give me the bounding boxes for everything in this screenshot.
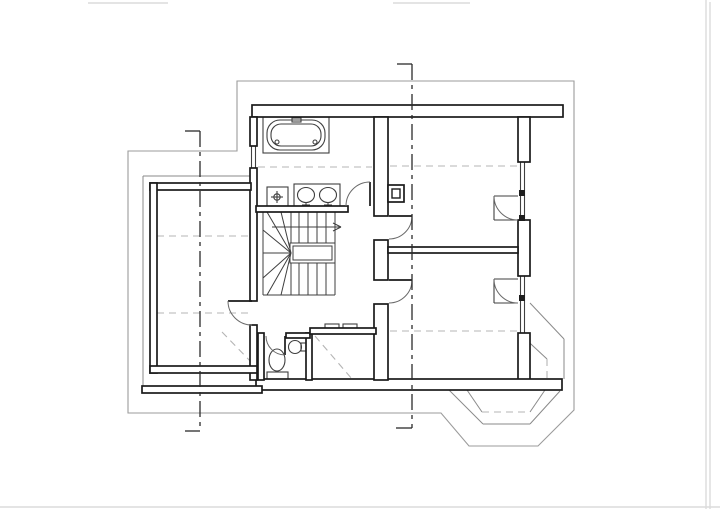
- ceiling-height-dashed-lines: [157, 166, 547, 412]
- scan-artifacts: [0, 0, 720, 509]
- stair-winder-u2: [267, 212, 291, 253]
- ne-room-door-swing-arc: [389, 216, 412, 239]
- wc-west-wall: [258, 333, 264, 380]
- wc-east-wall: [306, 333, 312, 380]
- left-room-south-wall: [150, 366, 257, 373]
- hall-east-wall-upper: [374, 117, 388, 216]
- bathtub-jet-left: [275, 140, 279, 144]
- bathroom-south-wall: [256, 206, 348, 212]
- hall-east-wall-middle: [374, 240, 388, 280]
- east-window1-mullion-lower: [519, 215, 525, 221]
- south-room-valley-line: [315, 336, 352, 379]
- toilet-bowl: [269, 349, 285, 371]
- east-exterior-wall-middle: [518, 220, 530, 276]
- bathroom-door-swing-arc: [346, 182, 370, 206]
- hall-east-wall-lower: [374, 304, 388, 380]
- bay-mid-side-left: [449, 390, 483, 424]
- stair-arrowhead-lower: [333, 227, 341, 231]
- south-middle-room-north-wall: [310, 328, 376, 334]
- bathtub-jet-right: [313, 140, 317, 144]
- wall-details: [392, 189, 400, 198]
- east-exterior-wall-upper: [518, 117, 530, 162]
- stair-winder-u1: [263, 230, 291, 253]
- stair-void-inner: [293, 246, 332, 260]
- bay-inner-side-right: [530, 390, 545, 412]
- north-exterior-wall: [252, 105, 563, 117]
- east-rooms-dividing-wall: [388, 247, 518, 253]
- south-exterior-wall: [256, 379, 562, 390]
- vanity-counter: [294, 184, 340, 207]
- bathroom-west-wall: [250, 117, 257, 146]
- walls: [142, 105, 563, 393]
- stair-winder-d2: [267, 253, 291, 295]
- wc-north-wall: [286, 333, 310, 338]
- left-block-outer-south-wall: [142, 386, 262, 393]
- staircase: [263, 212, 341, 295]
- casement2-swing-arc: [494, 279, 518, 303]
- vanity-basin-right: [320, 188, 337, 203]
- left-room-door-swing-arc: [228, 301, 252, 325]
- bay-inner-side-left: [467, 390, 482, 412]
- stair-arrowhead-upper: [333, 223, 341, 227]
- east-window2-mullion: [519, 295, 525, 301]
- se-room-door-swing-arc: [389, 280, 412, 303]
- east-exterior-wall-lower: [518, 333, 530, 380]
- casement1-swing-arc: [494, 196, 518, 220]
- east-window1-mullion-upper: [519, 190, 525, 196]
- chimney-flue: [392, 189, 400, 198]
- wc-corner-sink: [289, 341, 302, 354]
- vanity-basin-left: [298, 188, 315, 203]
- left-room-west-wall: [150, 183, 157, 373]
- scanned-floor-plan-page: [0, 0, 720, 509]
- stair-winder-d1: [263, 253, 291, 278]
- floor-plan-drawing: [0, 0, 720, 509]
- se-chamfer-outer-line: [530, 303, 564, 339]
- bay-mid-side-right: [530, 391, 560, 424]
